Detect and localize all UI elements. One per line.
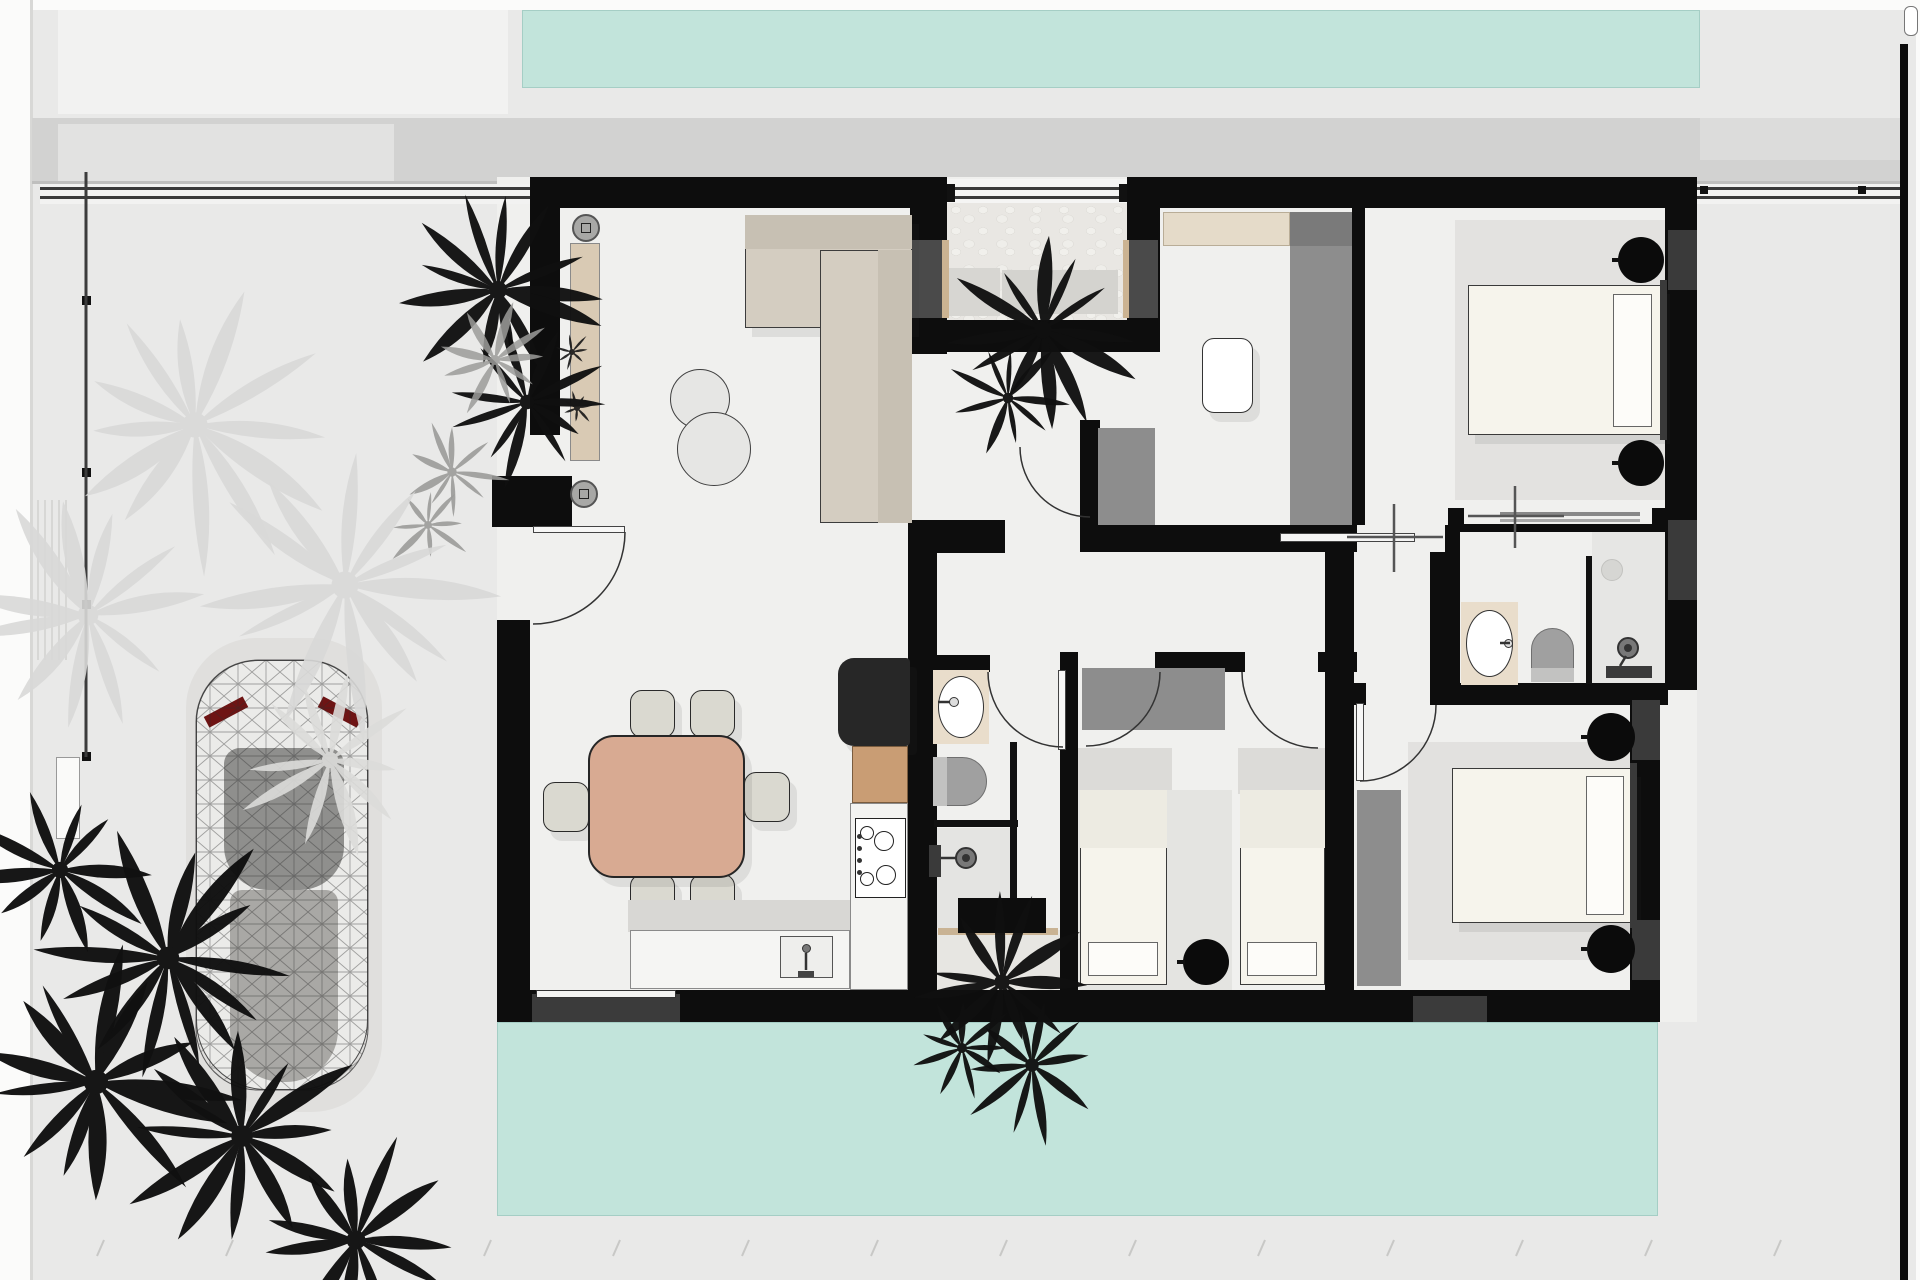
twin-bed-b-blanket <box>1240 790 1325 848</box>
porch-bench <box>570 243 600 461</box>
wall-left-lower <box>497 620 530 1022</box>
window-slot-top <box>947 179 1127 206</box>
bath-family-cistern <box>933 757 947 806</box>
partition-ensuite <box>1586 556 1592 684</box>
wall-hall-mid <box>1080 420 1100 527</box>
dining-chair-6 <box>744 772 790 822</box>
island-faucet <box>802 944 811 953</box>
dining-chair-5 <box>543 782 589 832</box>
window-jamb-1 <box>947 184 955 202</box>
door-leaf-entrance <box>533 526 625 533</box>
master-pillow <box>1613 294 1652 427</box>
twin-bed-b-pillow <box>1247 942 1317 976</box>
nightstand-master-2 <box>1618 440 1664 486</box>
pool-top <box>522 10 1700 88</box>
margin-top <box>0 0 1920 10</box>
walkway-step-right <box>1700 118 1905 160</box>
dining-table <box>588 735 745 878</box>
bath-family-sink <box>938 676 984 738</box>
ensuite-cistern <box>1531 668 1574 682</box>
wall-top-left <box>530 177 947 208</box>
pocket-col-patio-trim <box>1123 240 1129 318</box>
coffee-table-large <box>677 412 751 486</box>
slider-track-ensuite-1 <box>1500 512 1640 516</box>
master-headboard <box>1660 280 1667 440</box>
stove-knob-1 <box>857 834 862 839</box>
porch-column-1-core <box>581 223 591 233</box>
margin-right <box>1916 0 1920 1280</box>
dressing-wardrobe-top <box>1290 212 1352 246</box>
margin-left <box>0 0 32 1280</box>
burner-4 <box>860 872 874 886</box>
planter-box-porch <box>492 476 572 527</box>
twin-bed-a-pillow <box>1088 942 1158 976</box>
nightstand-b3-2 <box>1587 925 1635 973</box>
pocket-col-living-trim <box>942 240 949 318</box>
car-hood <box>230 890 338 1082</box>
threshold-bedroom3 <box>1413 996 1487 1022</box>
wall-hall-L <box>908 520 1005 553</box>
island-faucet-bar <box>798 971 814 977</box>
burner-3 <box>876 865 896 885</box>
nightstand-master-1 <box>1618 237 1664 283</box>
twin-pouf <box>1183 939 1229 985</box>
slider-track-ensuite-2 <box>1500 519 1640 522</box>
balustrade-post-2 <box>1700 186 1708 194</box>
slider-leaf-kitchen <box>536 990 676 998</box>
pocket-col-patio <box>1129 240 1158 318</box>
shower-family-valve <box>929 845 941 877</box>
threshold-kitchen <box>532 994 680 1022</box>
shower-ensuite-bench <box>1606 666 1652 678</box>
fence-node-1 <box>82 296 91 305</box>
fence-post-white <box>56 757 80 839</box>
ensuite-faucet <box>1504 639 1513 648</box>
dining-chair-2 <box>690 690 735 738</box>
walkway-light <box>58 124 394 182</box>
wall-left-upper <box>530 177 560 435</box>
twin-wardrobe <box>1082 668 1225 730</box>
pilaster-right-2 <box>1668 520 1697 600</box>
burner-2 <box>860 826 874 840</box>
nightstand-b3-1 <box>1587 713 1635 761</box>
titlebar <box>1900 44 1908 1280</box>
dressing-ottoman <box>1202 338 1253 413</box>
twin-bed-a-blanket <box>1080 790 1167 848</box>
window-jamb-2 <box>1119 184 1127 202</box>
sofa-back-top <box>745 215 912 249</box>
shower-drain <box>1601 559 1623 581</box>
wall-master-left <box>1352 208 1365 525</box>
pilaster-right-3 <box>1632 700 1660 760</box>
wall-ensuite-left <box>1430 552 1460 692</box>
shower-ensuite-floor <box>1592 532 1665 684</box>
fridge <box>838 658 910 746</box>
patio-stone-1 <box>948 268 1000 316</box>
stove-knob-4 <box>857 870 862 875</box>
porch-column-2-core <box>579 489 589 499</box>
pilaster-right-1 <box>1668 230 1697 290</box>
balustrade-post-3 <box>1858 186 1866 194</box>
dining-chair-1 <box>630 690 675 738</box>
wall-patio-bottom <box>947 320 1160 352</box>
shower-family-head-core <box>962 854 970 862</box>
pool-main <box>497 1022 1658 1216</box>
pergola-stripes <box>30 500 68 660</box>
sofa-back-side <box>878 250 912 523</box>
car-glass <box>224 748 344 890</box>
fence-node-4 <box>82 752 91 761</box>
island-shelf <box>628 900 850 932</box>
kitchen-cabinet <box>852 746 908 803</box>
wall-bedroom3-left <box>1325 552 1354 1022</box>
burner-1 <box>874 831 894 851</box>
fence-node-2 <box>82 468 91 477</box>
wall-hall-stub <box>958 898 1046 933</box>
slider-leaf-master <box>1280 533 1415 542</box>
wall-bedroom3-top-stub <box>1354 683 1366 705</box>
bedroom3-wardrobe <box>1357 790 1401 986</box>
titleblock-glyph <box>1904 6 1918 36</box>
bath-family-faucet <box>949 697 959 707</box>
pocket-col-living <box>912 240 944 318</box>
rug-twin-b <box>1238 748 1338 794</box>
floor-plan-canvas: CL. MARIE CURIE, PARCELA 5 DIRECCIÓN <box>0 0 1920 1280</box>
wall-top-right <box>1127 177 1697 208</box>
patio-stone-2 <box>1002 270 1118 314</box>
bedroom3-headboard <box>1630 763 1637 928</box>
ensuite-jamb-right <box>1652 508 1668 532</box>
bedroom3-pillow <box>1586 776 1624 915</box>
shower-ensuite-head-core <box>1624 644 1632 652</box>
ensuite-jamb-left <box>1448 508 1464 532</box>
stove-knob-2 <box>857 846 862 851</box>
dressing-wardrobe <box>1290 212 1352 525</box>
door-leaf-bedroom3 <box>1356 703 1364 781</box>
hall-wardrobe <box>1098 428 1155 525</box>
panel-top-left <box>58 10 508 114</box>
rug-twin-a <box>1072 748 1172 794</box>
divider-bath-family <box>934 820 1018 827</box>
door-leaf-bath-family <box>1058 670 1066 750</box>
wall-ensuite-top <box>1448 524 1668 532</box>
fence-node-3 <box>82 600 91 609</box>
stove-knob-3 <box>857 858 862 863</box>
pilaster-right-4 <box>1632 920 1660 980</box>
dressing-closet <box>1163 212 1290 246</box>
